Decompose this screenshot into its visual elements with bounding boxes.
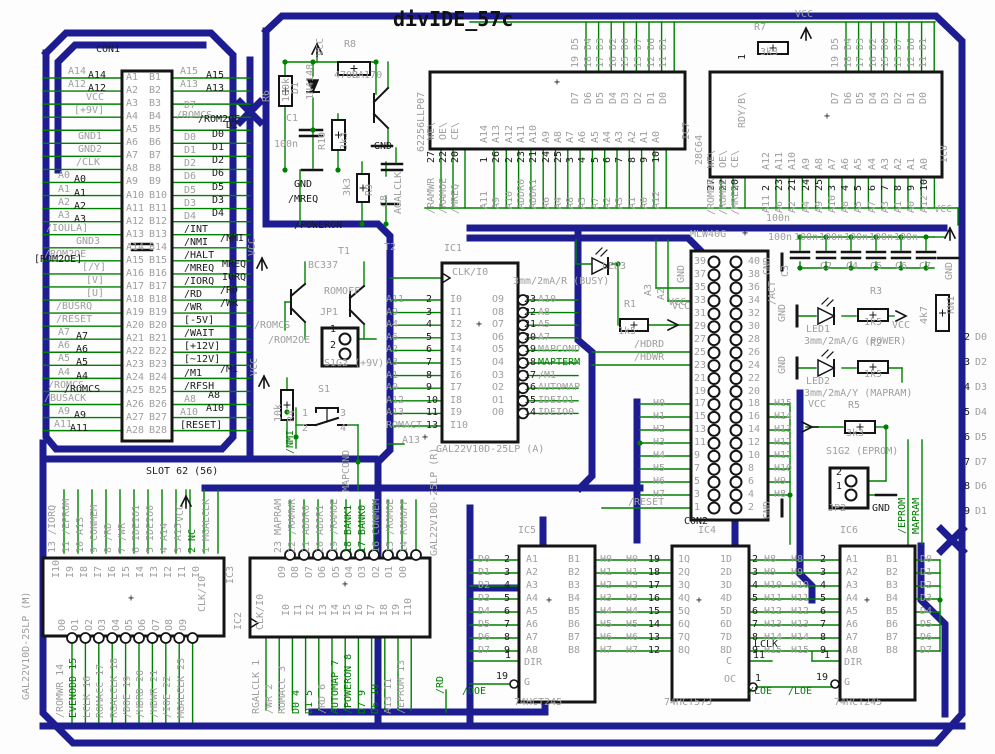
schematic-label: D4 bbox=[478, 607, 490, 617]
schematic-label: 32 bbox=[748, 309, 760, 319]
schematic-label: 11 D1 bbox=[919, 38, 929, 68]
schematic-label: 34 bbox=[748, 296, 760, 306]
schematic-label: + bbox=[824, 112, 830, 122]
schematic-label: H8 bbox=[774, 490, 786, 500]
schematic-label: H0 bbox=[600, 555, 612, 565]
schematic-label: A12 bbox=[762, 152, 772, 170]
schematic-label: 7D bbox=[720, 633, 732, 643]
schematic-label: H8 bbox=[764, 555, 776, 565]
schematic-label: AGALCLK bbox=[394, 172, 404, 214]
schematic-label: I9 bbox=[66, 566, 76, 578]
schematic-label: 7 bbox=[964, 458, 970, 468]
schematic-label: I3 bbox=[150, 566, 160, 578]
schematic-label: 100n bbox=[819, 233, 843, 243]
schematic-label: /HDRD 20 bbox=[136, 670, 146, 718]
schematic-label: A0 bbox=[652, 131, 662, 143]
schematic-label: O7 bbox=[492, 320, 504, 330]
schematic-label: C3 bbox=[781, 265, 791, 277]
schematic-label: GND bbox=[294, 180, 312, 190]
schematic-label: IC2 bbox=[234, 612, 244, 630]
schematic-label: 5 bbox=[854, 185, 864, 191]
schematic-label: 22 bbox=[524, 308, 536, 318]
schematic-label: /HALT bbox=[184, 251, 214, 261]
schematic-label: 5D bbox=[720, 607, 732, 617]
schematic-label: O3 bbox=[98, 619, 108, 631]
schematic-label: T1 bbox=[338, 247, 350, 257]
schematic-label: A6 bbox=[841, 158, 851, 170]
schematic-sheet: divIDE_57cCON1A14A12VCC[+9V]GND1GND2/CLK… bbox=[0, 0, 995, 754]
schematic-label: 3 bbox=[566, 157, 576, 163]
schematic-label: A8 bbox=[554, 131, 564, 143]
schematic-label: A3 bbox=[526, 581, 538, 591]
schematic-label: S1G2 (+9V) bbox=[324, 359, 384, 369]
schematic-label: A8 bbox=[841, 201, 851, 213]
schematic-label: 21 bbox=[694, 374, 706, 384]
schematic-label: /HDRD bbox=[634, 340, 664, 350]
schematic-label: I8 bbox=[380, 604, 390, 616]
schematic-label: O1 bbox=[492, 396, 504, 406]
schematic-label: A6 bbox=[542, 197, 552, 209]
schematic-label: 8 bbox=[748, 464, 754, 474]
schematic-label: ROMACC 3 bbox=[278, 666, 288, 714]
schematic-label: A10 bbox=[206, 404, 224, 414]
schematic-label: [/Y] bbox=[82, 263, 106, 273]
schematic-label: A2 bbox=[894, 158, 904, 170]
schematic-label: /WR 2 bbox=[265, 684, 275, 714]
schematic-label: + bbox=[864, 596, 870, 606]
schematic-label: /M1 bbox=[184, 369, 202, 379]
schematic-label: O2 bbox=[85, 619, 95, 631]
schematic-label: R7 bbox=[754, 23, 766, 33]
schematic-label: D6 bbox=[975, 482, 987, 492]
schematic-label: H7 bbox=[626, 646, 638, 656]
schematic-label: D1 bbox=[212, 143, 224, 153]
schematic-label: /NMI bbox=[220, 234, 244, 244]
schematic-label: 6 bbox=[748, 477, 754, 487]
schematic-label: B15 bbox=[149, 256, 167, 266]
schematic-label: /NMI bbox=[286, 430, 296, 454]
schematic-label: 100n bbox=[894, 233, 918, 243]
schematic-label: G bbox=[524, 678, 530, 688]
schematic-label: 12 D6 bbox=[647, 38, 657, 68]
schematic-label: A5 bbox=[578, 197, 588, 209]
schematic-label: 8 bbox=[752, 633, 758, 643]
schematic-label: O3 bbox=[492, 371, 504, 381]
schematic-label: 3 bbox=[828, 185, 838, 191]
schematic-label: 4 A14 bbox=[160, 523, 170, 553]
schematic-label: A12 bbox=[88, 84, 106, 94]
schematic-label: R2 bbox=[870, 339, 882, 349]
schematic-label: 19 bbox=[496, 672, 508, 682]
schematic-label: D3 bbox=[184, 199, 196, 209]
schematic-label: A18 bbox=[126, 295, 144, 305]
schematic-label: /DOE bbox=[462, 687, 486, 697]
schematic-label: 23 bbox=[517, 151, 527, 163]
schematic-label: GND bbox=[778, 356, 788, 374]
schematic-label: B11 bbox=[149, 204, 167, 214]
schematic-label: /RD bbox=[436, 676, 446, 694]
schematic-label: WE\ bbox=[427, 122, 437, 140]
schematic-label: 18 D4 bbox=[844, 38, 854, 68]
schematic-label: B6 bbox=[149, 138, 161, 148]
schematic-label: 5 bbox=[504, 594, 510, 604]
schematic-label: A0 bbox=[640, 197, 650, 209]
schematic-label: 3k3 bbox=[340, 132, 350, 150]
schematic-label: 17 bbox=[524, 371, 536, 381]
schematic-label: 6 bbox=[964, 433, 970, 443]
schematic-label: D7 9 bbox=[358, 690, 368, 714]
schematic-label: A10 bbox=[505, 191, 515, 209]
schematic-label: 7 bbox=[504, 620, 510, 630]
schematic-label: S1G2 (EPROM) bbox=[826, 447, 898, 457]
schematic-label: 13 /IORQ bbox=[48, 505, 58, 553]
schematic-label: 3k3 bbox=[846, 429, 864, 439]
schematic-label: R8 bbox=[344, 40, 356, 50]
schematic-label: A2 bbox=[126, 86, 138, 96]
schematic-label: H10 bbox=[791, 581, 809, 591]
schematic-label: A10 bbox=[538, 295, 556, 305]
schematic-label: 40 bbox=[748, 257, 760, 267]
schematic-label: 2 bbox=[762, 185, 772, 191]
schematic-label: VCC bbox=[672, 302, 690, 312]
schematic-label: 14 bbox=[524, 408, 536, 418]
schematic-label: B27 bbox=[149, 413, 167, 423]
schematic-label: /RESET bbox=[56, 315, 92, 325]
schematic-label: D6 bbox=[844, 92, 854, 104]
schematic-label: I2 bbox=[164, 566, 174, 578]
schematic-label: D4 bbox=[975, 408, 987, 418]
schematic-label: H7 bbox=[653, 490, 665, 500]
schematic-label: 6 bbox=[504, 607, 510, 617]
schematic-label: D3 bbox=[881, 92, 891, 104]
schematic-label: 19 bbox=[694, 387, 706, 397]
schematic-label: 23 bbox=[775, 179, 785, 191]
schematic-label: O7 bbox=[152, 619, 162, 631]
schematic-label: D0 bbox=[919, 92, 929, 104]
schematic-label: GND bbox=[374, 142, 392, 152]
schematic-label: A11 bbox=[70, 424, 88, 434]
schematic-label: A2 bbox=[657, 288, 667, 300]
schematic-label: A23 bbox=[126, 360, 144, 370]
schematic-label: 9 bbox=[694, 451, 700, 461]
schematic-label: /RD bbox=[220, 286, 238, 296]
schematic-label: A14 bbox=[126, 243, 144, 253]
schematic-label: 18 bbox=[648, 568, 660, 578]
schematic-label: H5 bbox=[600, 620, 612, 630]
schematic-label: 8 bbox=[628, 157, 638, 163]
schematic-label: H2 bbox=[600, 581, 612, 591]
schematic-label: 2 NC bbox=[188, 529, 198, 553]
schematic-label: 1 bbox=[480, 157, 490, 163]
schematic-label: O6 bbox=[492, 333, 504, 343]
schematic-label: 5Q bbox=[678, 607, 690, 617]
schematic-label: 3k3 bbox=[343, 178, 353, 196]
schematic-label: A2 bbox=[846, 568, 858, 578]
schematic-label: 14 bbox=[648, 620, 660, 630]
schematic-label: A1 bbox=[640, 131, 650, 143]
schematic-label: A7 bbox=[591, 197, 601, 209]
schematic-label: A27 bbox=[126, 413, 144, 423]
schematic-label: A15 bbox=[126, 256, 144, 266]
schematic-label: R9 bbox=[365, 184, 375, 196]
schematic-label: 8 /RD bbox=[104, 523, 114, 553]
schematic-label: AUTOMAP 7 bbox=[331, 660, 341, 714]
schematic-label: A2 bbox=[788, 201, 798, 213]
schematic-label: 10 bbox=[748, 451, 760, 461]
schematic-label: 3mm/2mA/Y (MAPRAM) bbox=[804, 389, 912, 399]
schematic-label: A6 bbox=[846, 620, 858, 630]
schematic-label: 5 bbox=[820, 594, 826, 604]
schematic-label: D0 4 bbox=[292, 690, 302, 714]
schematic-label: 35 bbox=[694, 283, 706, 293]
schematic-label: 74HCT245 bbox=[514, 698, 562, 708]
schematic-label: D5 bbox=[596, 92, 606, 104]
schematic-label: 7 bbox=[752, 620, 758, 630]
schematic-label: 20 bbox=[748, 387, 760, 397]
schematic-label: I6 bbox=[450, 371, 462, 381]
schematic-label: H10 bbox=[774, 464, 792, 474]
schematic-label: /ROMCS bbox=[254, 321, 290, 331]
schematic-title: divIDE_57c bbox=[393, 9, 513, 29]
schematic-label: 3 bbox=[340, 409, 346, 419]
schematic-label: I8 bbox=[450, 396, 462, 406]
schematic-label: B7 bbox=[149, 151, 161, 161]
schematic-label: O2 bbox=[492, 383, 504, 393]
schematic-label: LED1 bbox=[806, 325, 830, 335]
schematic-label: A22 bbox=[126, 347, 144, 357]
schematic-label: D7 bbox=[478, 646, 490, 656]
schematic-label: O6 bbox=[138, 619, 148, 631]
schematic-label: GND bbox=[945, 262, 955, 280]
schematic-label: A6 bbox=[775, 201, 785, 213]
schematic-label: D6 bbox=[584, 92, 594, 104]
schematic-label: H6 bbox=[653, 477, 665, 487]
schematic-label: B3 bbox=[886, 581, 898, 591]
schematic-label: 19 D5 bbox=[571, 38, 581, 68]
schematic-label: A13 bbox=[386, 408, 404, 418]
schematic-label: /M1 bbox=[538, 371, 556, 381]
schematic-label: A15 bbox=[206, 71, 224, 81]
schematic-label: O8 bbox=[165, 619, 175, 631]
schematic-label: I4 bbox=[450, 345, 462, 355]
schematic-label: B7 bbox=[886, 633, 898, 643]
schematic-label: A6 bbox=[76, 345, 88, 355]
schematic-label: A5 bbox=[526, 607, 538, 617]
schematic-label: O9 bbox=[278, 566, 288, 578]
schematic-label: JP1 bbox=[320, 308, 338, 318]
schematic-label: D7 bbox=[920, 646, 932, 656]
schematic-label: H0 bbox=[653, 399, 665, 409]
schematic-label: LED3 bbox=[602, 262, 626, 272]
schematic-label: /IORQ bbox=[184, 277, 214, 287]
schematic-label: 11 /EPROM bbox=[62, 499, 72, 553]
schematic-label: BC337 bbox=[308, 261, 338, 271]
schematic-label: B2 bbox=[568, 568, 580, 578]
schematic-label: 17 bbox=[648, 581, 660, 591]
schematic-label: A8 bbox=[208, 391, 220, 401]
schematic-label: H1 bbox=[600, 568, 612, 578]
schematic-label: 16 D2 bbox=[869, 38, 879, 68]
schematic-label: 12 D6 bbox=[907, 38, 917, 68]
schematic-label: A5 bbox=[846, 607, 858, 617]
schematic-label: A1 bbox=[526, 555, 538, 565]
schematic-label: D6 bbox=[212, 169, 224, 179]
schematic-label: /BUSRQ bbox=[56, 302, 92, 312]
schematic-label: R6 bbox=[262, 90, 272, 102]
schematic-label: /ROMWR bbox=[707, 179, 717, 215]
schematic-label: MGALCLK 23 bbox=[177, 658, 187, 718]
schematic-label: MREQ bbox=[222, 260, 246, 270]
schematic-label: GAL22V10D-25LP (A) bbox=[436, 445, 544, 455]
schematic-label: C7 bbox=[919, 262, 931, 272]
schematic-label: A14 bbox=[68, 67, 86, 77]
schematic-label: 2 bbox=[330, 341, 336, 351]
schematic-label: 100n bbox=[794, 233, 818, 243]
schematic-label: 10 bbox=[652, 151, 662, 163]
schematic-label: A6 bbox=[578, 131, 588, 143]
schematic-label: A11 bbox=[126, 204, 144, 214]
schematic-label: VCC bbox=[892, 321, 910, 331]
schematic-label: A2 bbox=[603, 197, 613, 209]
schematic-label: D2 bbox=[894, 92, 904, 104]
schematic-label: A1 bbox=[907, 158, 917, 170]
schematic-label: 25 bbox=[694, 348, 706, 358]
schematic-label: 31 bbox=[694, 309, 706, 319]
schematic-label: D5 bbox=[478, 620, 490, 630]
schematic-label: B12 bbox=[149, 217, 167, 227]
schematic-label: H3 bbox=[600, 594, 612, 604]
schematic-label: OE\ bbox=[439, 122, 449, 140]
schematic-label: /M1 bbox=[220, 365, 238, 375]
schematic-label: GAL22V10D-25LP (R) bbox=[430, 448, 440, 556]
schematic-label: I7 bbox=[367, 604, 377, 616]
schematic-label: H11 bbox=[774, 451, 792, 461]
schematic-label: I7 bbox=[450, 383, 462, 393]
schematic-label: [V] bbox=[86, 276, 104, 286]
schematic-label: A13 bbox=[126, 230, 144, 240]
schematic-label: B5 bbox=[886, 607, 898, 617]
schematic-label: 1N4148 bbox=[306, 64, 316, 100]
schematic-label: 1 bbox=[836, 482, 842, 492]
schematic-label: IC8 bbox=[940, 145, 950, 163]
schematic-label: 16 bbox=[648, 594, 660, 604]
schematic-label: H12 bbox=[774, 438, 792, 448]
schematic-label: 3k3 bbox=[760, 48, 778, 58]
schematic-label: O1 bbox=[71, 619, 81, 631]
schematic-label: 3mm/2mA/R (BUSY) bbox=[513, 277, 609, 287]
schematic-label: I10 bbox=[404, 598, 414, 616]
schematic-label: JP2 bbox=[828, 504, 846, 514]
schematic-label: A9 bbox=[126, 177, 138, 187]
schematic-label: /MREQ bbox=[451, 184, 461, 214]
schematic-label: 13 bbox=[694, 425, 706, 435]
schematic-label: 27 bbox=[427, 151, 437, 163]
schematic-label: 15 bbox=[648, 607, 660, 617]
schematic-label: + bbox=[554, 78, 560, 88]
schematic-label: R4 bbox=[287, 410, 297, 422]
schematic-label: O2 bbox=[372, 566, 382, 578]
schematic-label: 26 bbox=[492, 151, 502, 163]
schematic-label: A17 bbox=[126, 282, 144, 292]
schematic-label: B1 bbox=[149, 73, 161, 83]
schematic-label: 13 D7 bbox=[634, 38, 644, 68]
schematic-label: 2 bbox=[836, 468, 842, 478]
schematic-label: 6 bbox=[426, 345, 432, 355]
schematic-label: B24 bbox=[149, 373, 167, 383]
schematic-label: 7 bbox=[426, 358, 432, 368]
schematic-label: 29 bbox=[694, 322, 706, 332]
schematic-label: 20 ADDR1 bbox=[316, 505, 326, 553]
schematic-label: O0 bbox=[58, 619, 68, 631]
schematic-label: RGALCLK 18 bbox=[110, 658, 120, 718]
schematic-label: A4 bbox=[603, 131, 613, 143]
schematic-label: /IOE 22 bbox=[163, 676, 173, 718]
schematic-label: H11 bbox=[791, 594, 809, 604]
schematic-label: + bbox=[422, 433, 428, 443]
schematic-label: A4 bbox=[126, 112, 138, 122]
schematic-label: 2 bbox=[820, 555, 826, 565]
schematic-label: D7 bbox=[571, 92, 581, 104]
schematic-label: A21 bbox=[126, 334, 144, 344]
schematic-label: 5 bbox=[426, 333, 432, 343]
schematic-label: 8Q bbox=[678, 646, 690, 656]
schematic-label: [U] bbox=[86, 289, 104, 299]
schematic-label: A20 bbox=[126, 321, 144, 331]
schematic-label: /BUSACK bbox=[44, 394, 86, 404]
schematic-label: GND bbox=[763, 257, 773, 275]
schematic-label: OC bbox=[724, 675, 736, 685]
schematic-label: I10 bbox=[450, 421, 468, 431]
schematic-label: 4 bbox=[964, 383, 970, 393]
schematic-label: 10k bbox=[274, 404, 284, 422]
schematic-label: H11 bbox=[764, 594, 782, 604]
schematic-label: + bbox=[128, 594, 134, 604]
schematic-label: B18 bbox=[149, 295, 167, 305]
schematic-label: 37 bbox=[694, 270, 706, 280]
schematic-label: A3 bbox=[881, 158, 891, 170]
schematic-label: H12 bbox=[764, 607, 782, 617]
schematic-label: IORQ bbox=[222, 273, 246, 283]
schematic-label: 16 bbox=[748, 412, 760, 422]
schematic-label: R1 bbox=[624, 300, 636, 310]
schematic-label: H10 bbox=[764, 581, 782, 591]
schematic-label: /RAMOE bbox=[439, 178, 449, 214]
schematic-label: 23 bbox=[694, 361, 706, 371]
schematic-label: EVENODD 15 bbox=[69, 658, 79, 718]
schematic-label: A7 bbox=[526, 633, 538, 643]
schematic-label: + bbox=[696, 596, 702, 606]
schematic-label: 33 bbox=[694, 296, 706, 306]
schematic-label: A12 bbox=[126, 217, 144, 227]
schematic-label: O7 bbox=[305, 566, 315, 578]
schematic-label: 6Q bbox=[678, 620, 690, 630]
schematic-label: C4 bbox=[846, 262, 858, 272]
schematic-label: D4 bbox=[184, 212, 196, 222]
schematic-label: B28 bbox=[149, 426, 167, 436]
schematic-label: D3 bbox=[975, 383, 987, 393]
schematic-label: O9 bbox=[179, 619, 189, 631]
schematic-label: H1 bbox=[653, 412, 665, 422]
schematic-label: A4 bbox=[76, 372, 88, 382]
schematic-label: 8 bbox=[504, 633, 510, 643]
schematic-label: AUTOMAP bbox=[538, 383, 580, 393]
schematic-label: 2Q bbox=[678, 568, 690, 578]
schematic-label: 9 bbox=[640, 157, 650, 163]
schematic-label: A9 bbox=[74, 411, 86, 421]
schematic-label: 5 bbox=[694, 477, 700, 487]
schematic-label: /MREQ bbox=[731, 185, 741, 215]
schematic-label: D1 bbox=[920, 568, 932, 578]
